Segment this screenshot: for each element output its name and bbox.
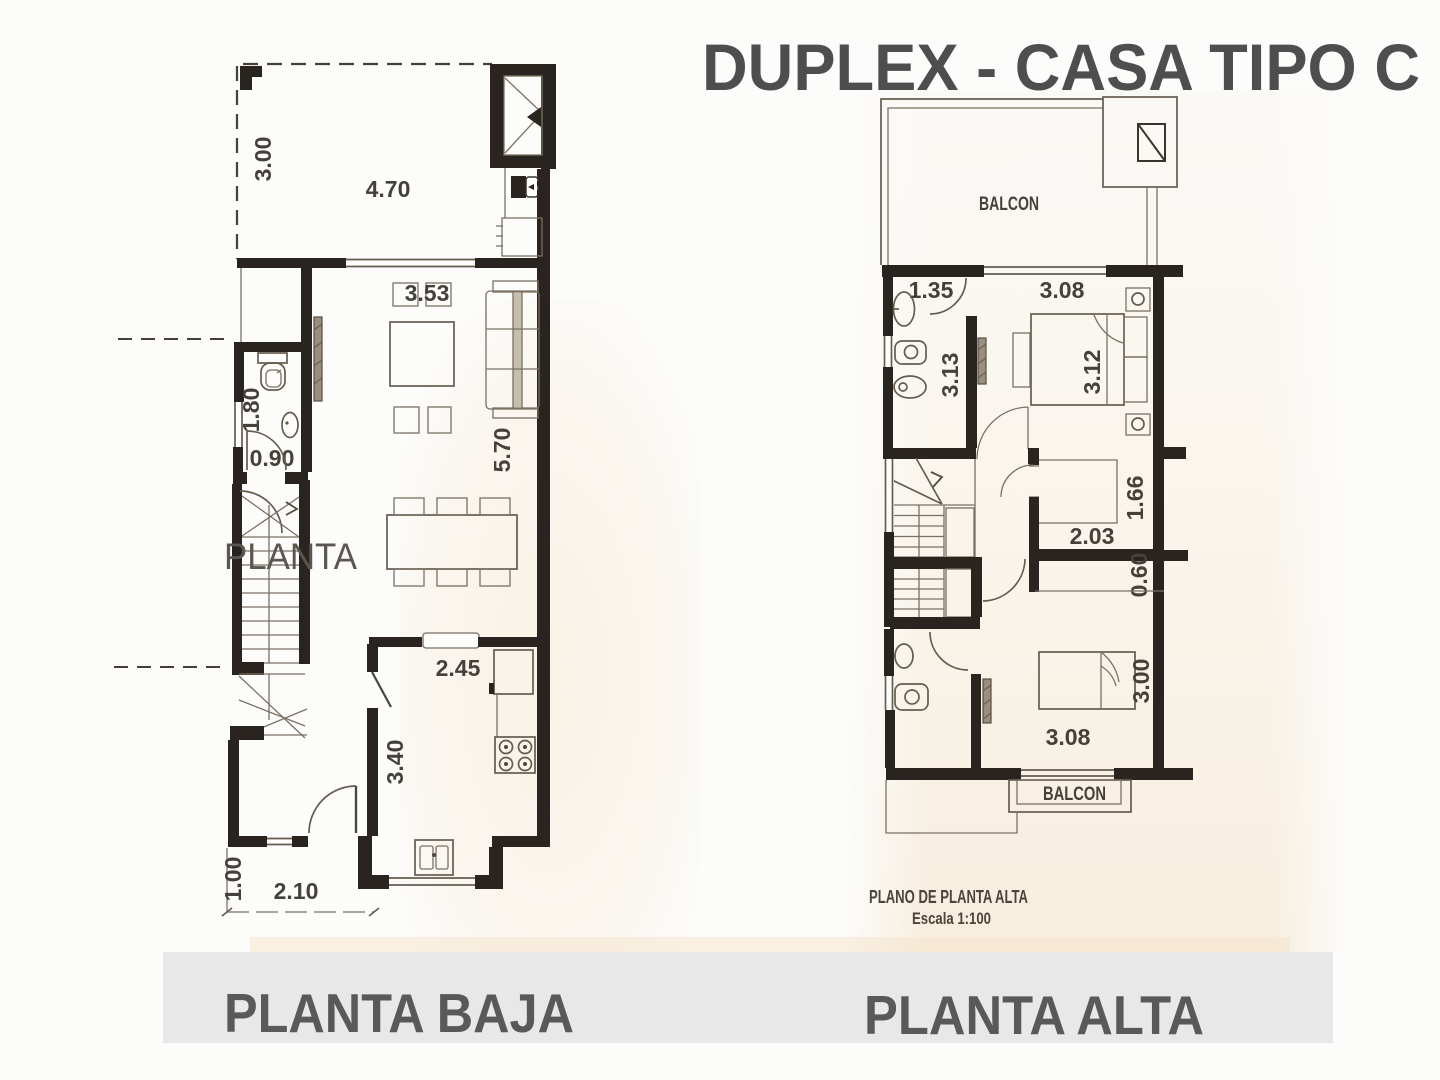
svg-text:3.13: 3.13: [937, 353, 963, 398]
svg-text:DUPLEX - CASA TIPO C: DUPLEX - CASA TIPO C: [702, 30, 1420, 104]
svg-text:4.70: 4.70: [366, 176, 411, 202]
svg-text:BALCON: BALCON: [1043, 784, 1106, 805]
svg-text:3.12: 3.12: [1079, 350, 1105, 395]
svg-text:0.90: 0.90: [250, 445, 295, 471]
svg-text:3.08: 3.08: [1046, 724, 1091, 750]
svg-text:3.00: 3.00: [250, 137, 276, 182]
svg-text:PLANTA BAJA: PLANTA BAJA: [224, 982, 574, 1044]
svg-text:3.40: 3.40: [382, 740, 408, 785]
svg-text:2.10: 2.10: [274, 878, 319, 904]
svg-text:1.35: 1.35: [909, 277, 954, 303]
svg-text:3.08: 3.08: [1040, 277, 1085, 303]
svg-text:PLANO DE PLANTA ALTA: PLANO DE PLANTA ALTA: [869, 887, 1028, 907]
svg-text:3.53: 3.53: [405, 280, 450, 306]
svg-text:3.00: 3.00: [1128, 659, 1154, 704]
svg-text:2.03: 2.03: [1070, 523, 1115, 549]
svg-text:BALCON: BALCON: [979, 194, 1039, 215]
svg-text:PLANTA ALTA: PLANTA ALTA: [864, 984, 1204, 1046]
svg-text:5.70: 5.70: [489, 428, 515, 473]
svg-text:2.45: 2.45: [436, 655, 481, 681]
svg-text:1.80: 1.80: [238, 388, 264, 433]
svg-text:1.66: 1.66: [1122, 476, 1148, 521]
svg-text:Escala 1:100: Escala 1:100: [912, 909, 991, 928]
svg-text:PLANTA: PLANTA: [224, 536, 357, 577]
svg-text:1.00: 1.00: [220, 857, 246, 902]
